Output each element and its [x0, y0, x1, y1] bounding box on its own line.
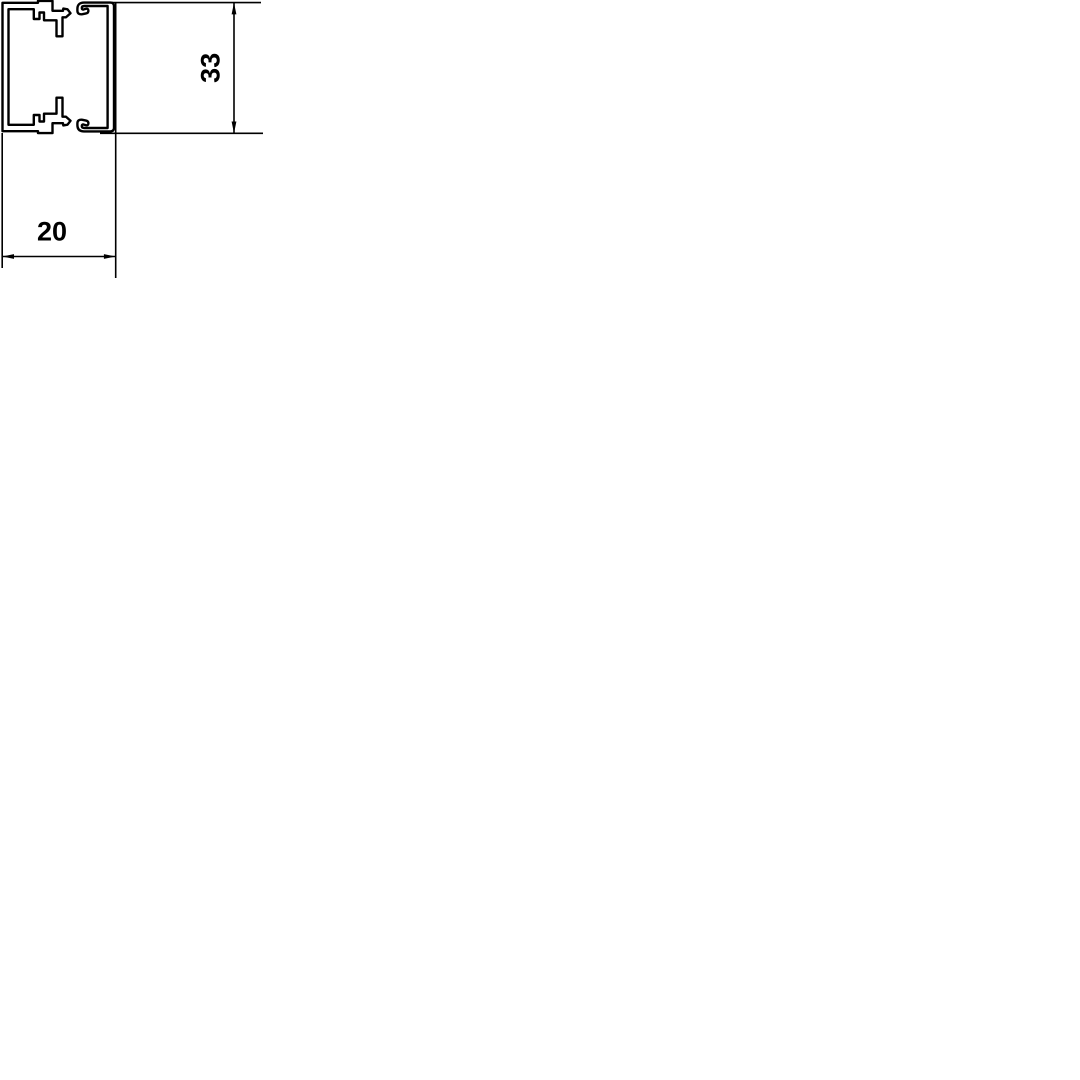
dimension-arrow-height-top	[232, 3, 237, 15]
height-dimension-label: 33	[196, 53, 226, 83]
trunking-cover-profile-outline	[77, 3, 114, 132]
width-dimension-label: 20	[37, 217, 67, 247]
trunking-cross-section-drawing: 20 33	[0, 0, 300, 300]
dimension-arrow-width-right	[104, 254, 116, 259]
drawing-canvas: 20 33	[0, 0, 1080, 1080]
dimension-arrow-height-bottom	[232, 122, 237, 134]
dimension-arrow-width-left	[2, 254, 14, 259]
trunking-base-profile-outline	[3, 1, 71, 133]
